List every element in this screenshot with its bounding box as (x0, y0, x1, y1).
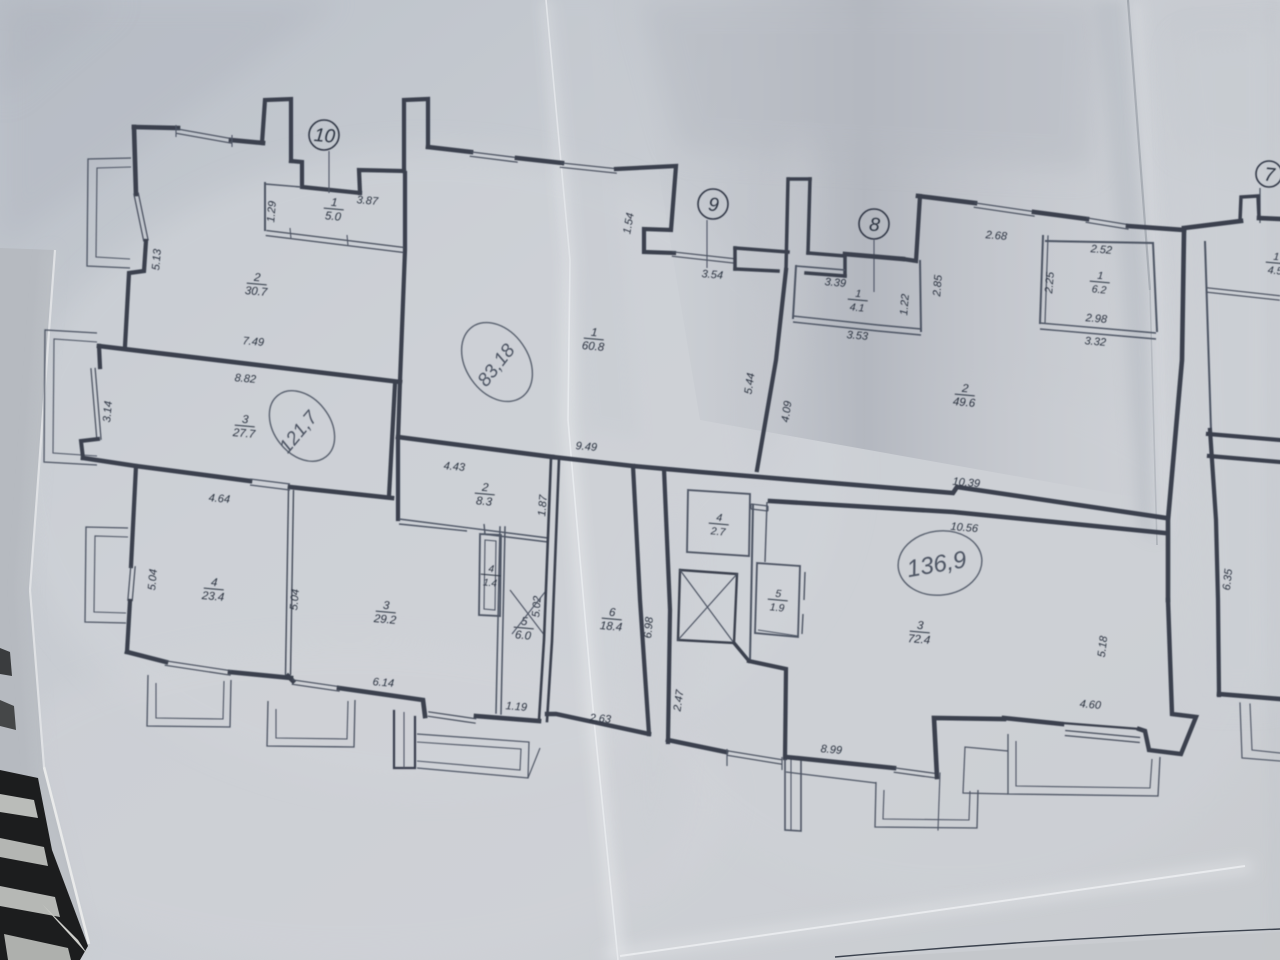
svg-text:6.0: 6.0 (515, 629, 533, 642)
svg-text:4.64: 4.64 (208, 492, 230, 506)
svg-text:6.2: 6.2 (1091, 283, 1107, 296)
svg-text:3.32: 3.32 (1084, 335, 1106, 349)
svg-text:27.7: 27.7 (231, 427, 256, 441)
svg-text:1.9: 1.9 (769, 601, 785, 614)
svg-text:5.04: 5.04 (146, 569, 160, 591)
svg-text:3.54: 3.54 (701, 268, 723, 282)
svg-text:30.7: 30.7 (244, 285, 268, 299)
svg-text:5.02: 5.02 (530, 596, 544, 618)
svg-text:2.63: 2.63 (588, 712, 612, 726)
svg-text:4: 4 (211, 577, 218, 590)
svg-text:3.14: 3.14 (101, 401, 115, 423)
svg-text:1: 1 (1097, 270, 1104, 282)
svg-text:5.0: 5.0 (325, 210, 343, 223)
svg-text:5.13: 5.13 (150, 248, 164, 271)
svg-text:2.25: 2.25 (1043, 271, 1057, 295)
svg-text:23.4: 23.4 (200, 590, 224, 604)
svg-text:4.1: 4.1 (849, 301, 865, 314)
svg-text:2.68: 2.68 (984, 229, 1008, 243)
svg-text:10: 10 (313, 125, 336, 148)
svg-text:2.98: 2.98 (1084, 312, 1108, 326)
svg-text:72.4: 72.4 (907, 633, 930, 647)
svg-text:1: 1 (1273, 251, 1280, 263)
svg-text:4.43: 4.43 (443, 460, 466, 474)
svg-text:4.5: 4.5 (1267, 264, 1280, 277)
svg-text:1.4: 1.4 (483, 577, 498, 589)
svg-text:1: 1 (855, 288, 862, 300)
svg-text:3.39: 3.39 (824, 276, 846, 290)
svg-text:2.52: 2.52 (1089, 243, 1112, 257)
svg-text:8.82: 8.82 (234, 372, 256, 386)
svg-text:1.29: 1.29 (265, 201, 279, 223)
svg-text:9.49: 9.49 (575, 440, 597, 454)
svg-text:3.87: 3.87 (356, 194, 379, 208)
svg-text:6.14: 6.14 (372, 676, 394, 690)
svg-text:2.85: 2.85 (931, 274, 945, 298)
svg-text:4.60: 4.60 (1079, 698, 1102, 712)
svg-text:10.56: 10.56 (950, 521, 979, 535)
svg-text:7.49: 7.49 (242, 335, 264, 349)
svg-text:5.04: 5.04 (288, 589, 302, 611)
svg-text:1.22: 1.22 (898, 294, 912, 316)
svg-text:1: 1 (591, 327, 598, 340)
svg-text:49.6: 49.6 (952, 396, 976, 410)
svg-text:4: 4 (716, 512, 723, 524)
svg-text:5: 5 (775, 588, 782, 600)
svg-text:1.19: 1.19 (505, 700, 527, 714)
svg-text:60.8: 60.8 (581, 340, 605, 354)
svg-text:1: 1 (331, 197, 338, 210)
svg-text:29.2: 29.2 (372, 613, 397, 627)
svg-text:10.39: 10.39 (952, 476, 980, 490)
svg-text:8.3: 8.3 (476, 495, 494, 508)
svg-text:3.53: 3.53 (846, 329, 869, 343)
svg-text:6.35: 6.35 (1221, 568, 1235, 591)
svg-text:8.99: 8.99 (820, 743, 842, 757)
svg-text:2.7: 2.7 (709, 525, 727, 538)
svg-text:18.4: 18.4 (599, 620, 622, 634)
